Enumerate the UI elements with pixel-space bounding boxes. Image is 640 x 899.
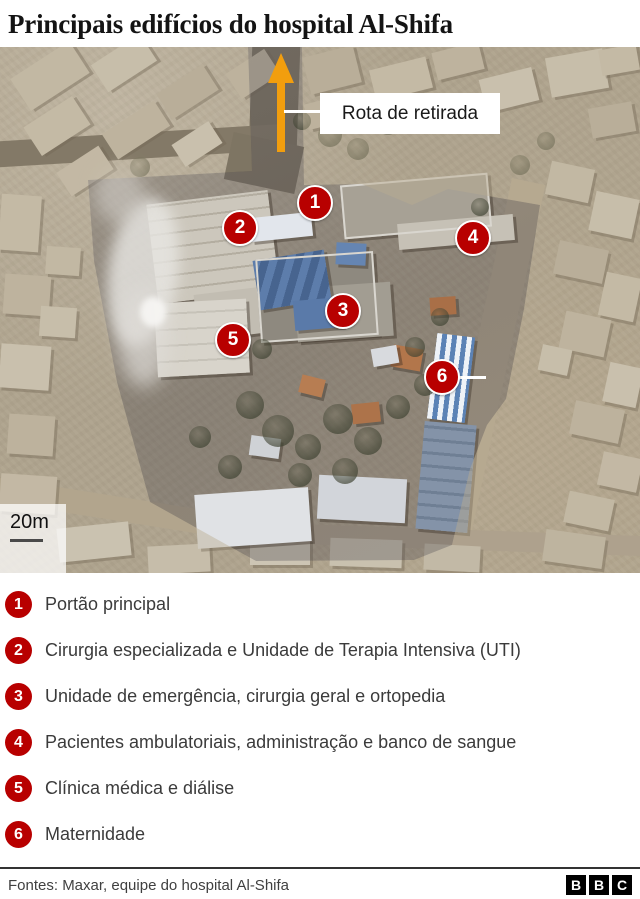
map-marker-5: 5	[215, 322, 251, 358]
scale-label: 20m	[10, 511, 66, 534]
route-label-connector	[284, 110, 322, 113]
footer: Fontes: Maxar, equipe do hospital Al-Shi…	[0, 869, 640, 895]
bbc-logo-letter: B	[589, 875, 609, 895]
tree	[471, 198, 489, 216]
tree	[189, 426, 211, 448]
tree	[252, 339, 272, 359]
building	[45, 246, 81, 276]
tree	[386, 395, 410, 419]
tree	[510, 155, 530, 175]
route-label: Rota de retirada	[342, 103, 478, 125]
source-text: Fontes: Maxar, equipe do hospital Al-Shi…	[8, 877, 289, 894]
building	[415, 421, 476, 533]
legend-item-2: 2Cirurgia especializada e Unidade de Ter…	[5, 637, 640, 664]
smoke-plume	[140, 297, 166, 327]
building	[0, 194, 42, 253]
building	[602, 362, 640, 408]
legend-item-4: 4Pacientes ambulatoriais, administração …	[5, 729, 640, 756]
building	[194, 487, 311, 549]
legend: 1Portão principal2Cirurgia especializada…	[0, 573, 640, 848]
tree	[293, 112, 311, 130]
bbc-logo: BBC	[566, 875, 632, 895]
infographic: Principais edifícios do hospital Al-Shif…	[0, 0, 640, 899]
legend-item-1: 1Portão principal	[5, 591, 640, 618]
tree	[431, 308, 449, 326]
legend-item-5: 5Clínica médica e diálise	[5, 775, 640, 802]
map-marker-1: 1	[297, 185, 333, 221]
legend-label-4: Pacientes ambulatoriais, administração e…	[45, 732, 516, 753]
map-marker-3: 3	[325, 293, 361, 329]
map-marker-4: 4	[455, 220, 491, 256]
tree	[288, 463, 312, 487]
scale-bar	[10, 539, 43, 542]
bbc-logo-letter: C	[612, 875, 632, 895]
map-marker-2: 2	[222, 210, 258, 246]
legend-label-1: Portão principal	[45, 594, 170, 615]
legend-marker-5: 5	[5, 775, 32, 802]
tree	[262, 415, 294, 447]
page-title: Principais edifícios do hospital Al-Shif…	[8, 9, 640, 40]
tree	[354, 427, 382, 455]
tree	[347, 138, 369, 160]
legend-label-5: Clínica médica e diálise	[45, 778, 234, 799]
tree	[323, 404, 353, 434]
building	[351, 402, 381, 425]
legend-marker-2: 2	[5, 637, 32, 664]
tree	[295, 434, 321, 460]
building	[0, 343, 51, 390]
legend-marker-3: 3	[5, 683, 32, 710]
legend-label-3: Unidade de emergência, cirurgia geral e …	[45, 686, 445, 707]
legend-item-6: 6Maternidade	[5, 821, 640, 848]
building	[317, 475, 407, 524]
bbc-logo-letter: B	[566, 875, 586, 895]
legend-marker-1: 1	[5, 591, 32, 618]
building-outline	[255, 251, 379, 343]
legend-marker-6: 6	[5, 821, 32, 848]
legend-item-3: 3Unidade de emergência, cirurgia geral e…	[5, 683, 640, 710]
tree	[218, 455, 242, 479]
route-label-box: Rota de retirada	[320, 93, 500, 134]
tree	[332, 458, 358, 484]
building	[7, 413, 56, 456]
tree	[405, 337, 425, 357]
legend-label-6: Maternidade	[45, 824, 145, 845]
legend-marker-4: 4	[5, 729, 32, 756]
title-block: Principais edifícios do hospital Al-Shif…	[0, 0, 640, 47]
tree	[236, 391, 264, 419]
marker-6-leader-line	[458, 376, 486, 379]
satellite-map: Rota de retirada 123456 20m	[0, 47, 640, 573]
map-marker-6: 6	[424, 359, 460, 395]
scale-box: 20m	[0, 504, 66, 573]
legend-label-2: Cirurgia especializada e Unidade de Tera…	[45, 640, 521, 661]
tree	[537, 132, 555, 150]
building	[39, 306, 77, 338]
